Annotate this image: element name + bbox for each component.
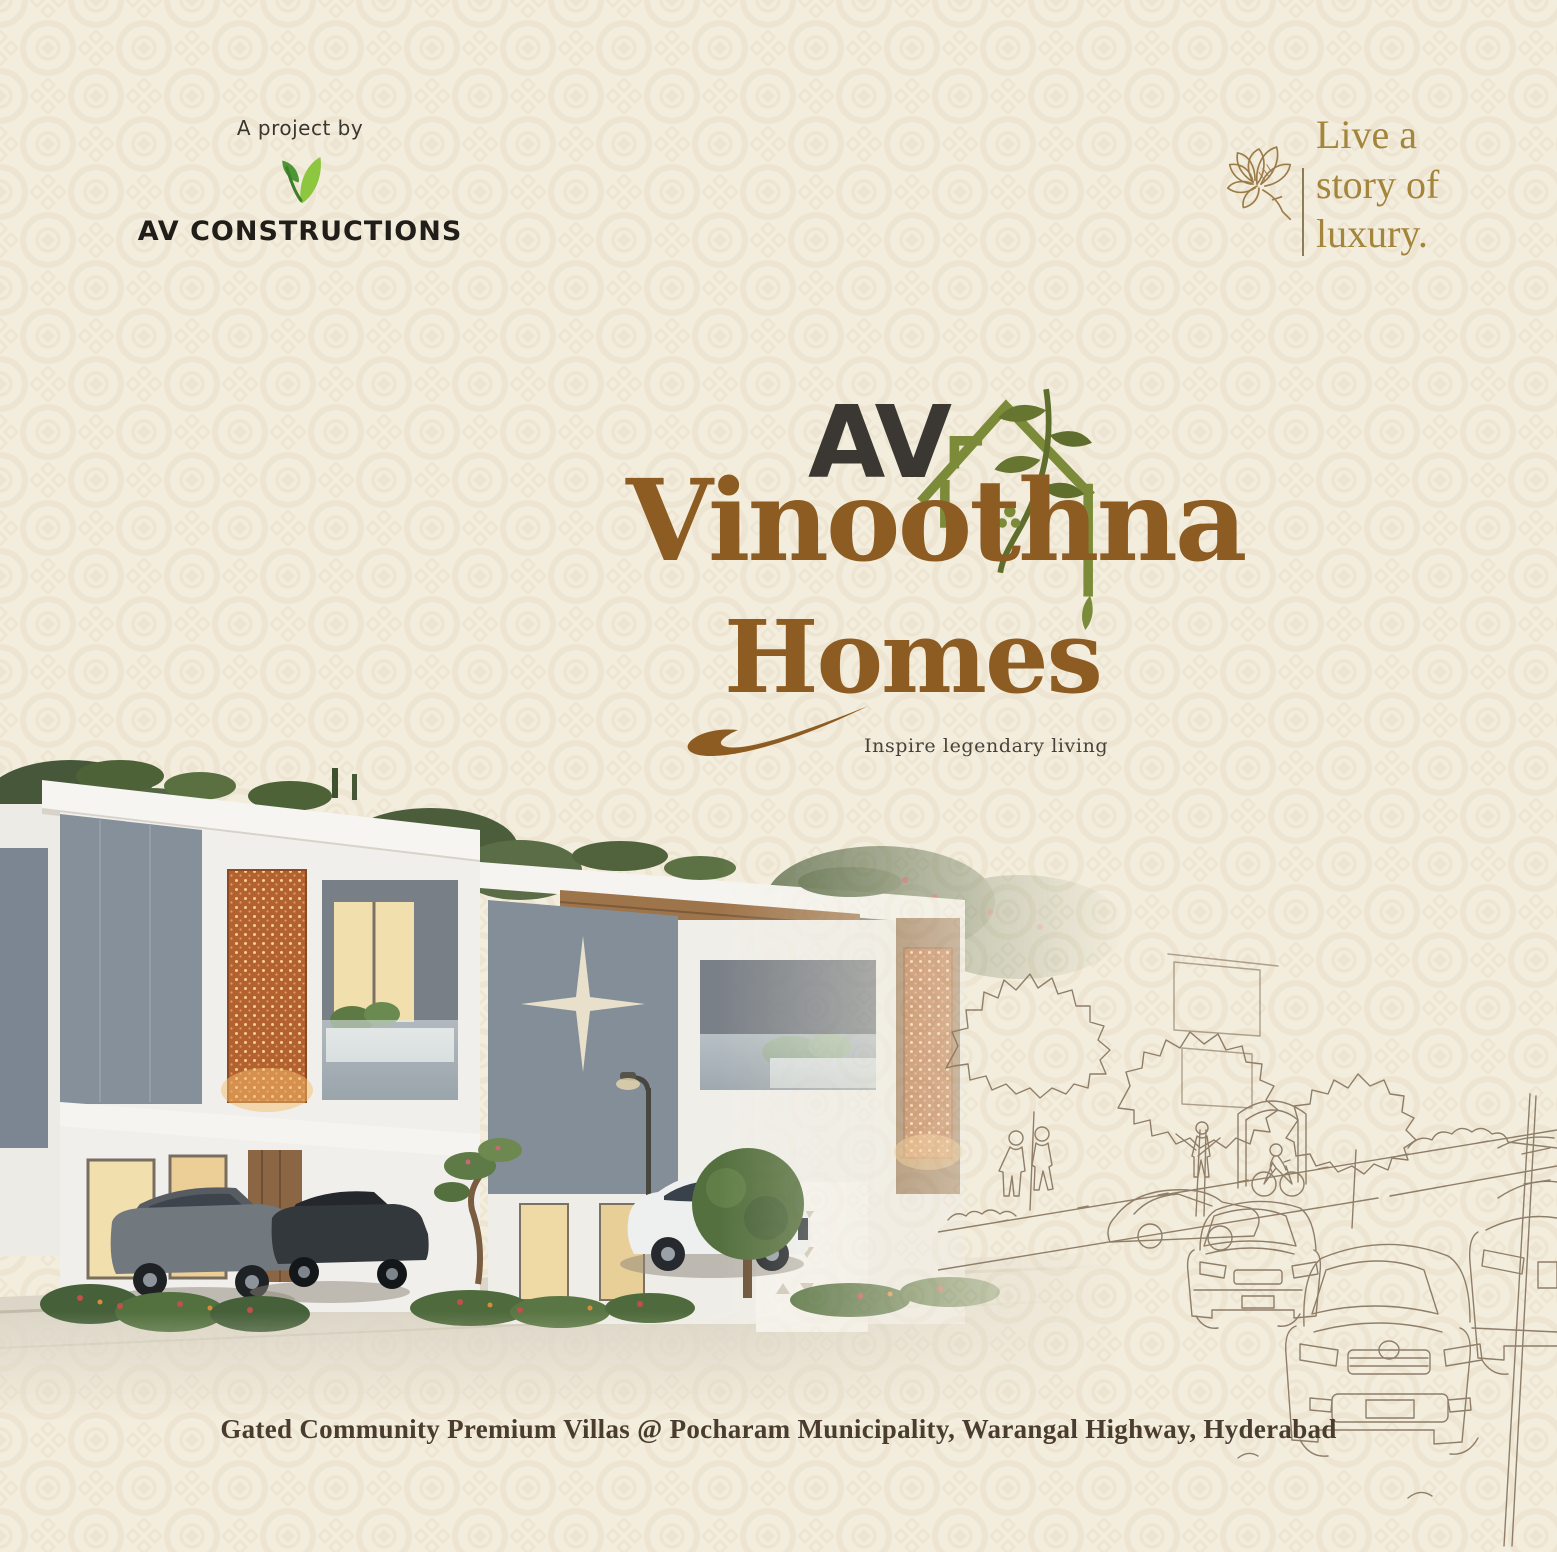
brochure-poster: A project by AV CONSTRUCTIONS xyxy=(0,0,1557,1552)
tagline-line-1: Live a xyxy=(1316,110,1439,160)
logo-name-line1: Vinoothna xyxy=(626,466,1244,578)
sketch-pole xyxy=(1504,1094,1550,1546)
sketch-car-clipped-right xyxy=(1470,1137,1557,1374)
logo-name-line2: Homes xyxy=(724,607,1101,707)
tagline-line-2: story of xyxy=(1316,160,1439,210)
sketch-cyclist xyxy=(1252,1144,1304,1196)
tagline-divider-line xyxy=(1302,168,1304,256)
tagline-art xyxy=(1216,110,1300,259)
flower-icon xyxy=(1216,138,1300,242)
tagline-text: Live a story of luxury. xyxy=(1316,110,1439,259)
tagline-block: Live a story of luxury. xyxy=(1216,110,1439,259)
developer-brand-block: A project by AV CONSTRUCTIONS xyxy=(148,116,452,247)
tagline-line-3: luxury. xyxy=(1316,209,1439,259)
villa-far-left xyxy=(0,804,66,1256)
sketch-building-fade xyxy=(1168,954,1278,1108)
location-caption: Gated Community Premium Villas @ Pochara… xyxy=(0,1414,1557,1445)
developer-name: AV CONSTRUCTIONS xyxy=(138,216,463,247)
project-logo: AV Vinoothna Homes Inspire legendary liv… xyxy=(618,372,1248,787)
project-by-label: A project by xyxy=(237,116,363,140)
street-sketch-line-art xyxy=(938,898,1557,1552)
logo-subtitle: Inspire legendary living xyxy=(864,735,1108,757)
logo-swash xyxy=(648,702,878,772)
av-leaf-logo-icon xyxy=(269,150,331,210)
sketch-hatchback-front xyxy=(1188,1201,1321,1328)
sketch-ground-squiggles xyxy=(1238,1453,1432,1498)
